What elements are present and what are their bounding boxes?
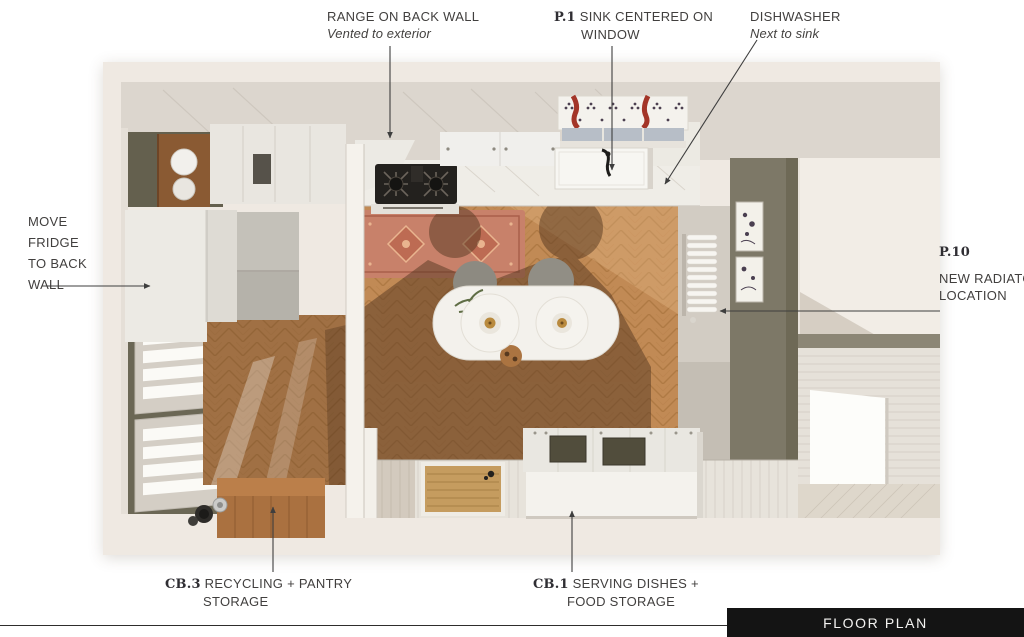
floor-plan-render <box>103 62 940 555</box>
pantry-room <box>125 124 346 524</box>
door-mat <box>421 462 505 516</box>
fridge-label: MOVE FRIDGE TO BACK WALL <box>28 214 87 292</box>
footer-divider <box>0 625 727 626</box>
range-title: RANGE ON BACK WALL <box>327 8 479 25</box>
fridge-annotation: MOVE FRIDGE TO BACK WALL <box>28 211 94 295</box>
dishwasher-annotation: DISHWASHER Next to sink <box>750 8 841 42</box>
pendant-light <box>461 294 519 352</box>
dishwasher-note: Next to sink <box>750 25 841 42</box>
range-note: Vented to exterior <box>327 25 479 42</box>
radiator-label: NEW RADIATOR LOCATION <box>939 271 1024 303</box>
pendant-light <box>536 297 588 349</box>
sink-label: SINK CENTERED ON WINDOW <box>580 9 713 42</box>
range-annotation: RANGE ON BACK WALL Vented to exterior <box>327 8 479 42</box>
door-panel <box>810 390 885 500</box>
floor-plan-svg <box>103 62 940 555</box>
sink <box>555 148 653 189</box>
sink-annotation: P.1 SINK CENTERED ON WINDOW <box>554 8 739 43</box>
cb1-code: CB.1 <box>533 577 569 592</box>
dishwasher-title: DISHWASHER <box>750 8 841 25</box>
cb3-code: CB.3 <box>165 577 201 592</box>
cb1-label: SERVING DISHES + FOOD STORAGE <box>567 576 699 609</box>
footer-title: FLOOR PLAN <box>823 615 928 631</box>
adjacent-room <box>798 158 940 520</box>
radiator-code: P.10 <box>939 244 1024 261</box>
footer-title-bar: FLOOR PLAN <box>727 608 1024 637</box>
sink-code: P.1 <box>554 10 576 25</box>
sideboard-cb1 <box>523 428 703 519</box>
cb3-annotation: CB.3 RECYCLING + PANTRY STORAGE <box>165 575 381 610</box>
divider-wall <box>346 144 364 518</box>
fridge-target-cabinet <box>125 210 207 342</box>
window-glass <box>562 128 684 141</box>
range-cooktop <box>371 164 459 214</box>
cb1-annotation: CB.1 SERVING DISHES + FOOD STORAGE <box>533 575 735 610</box>
window-curtain <box>558 96 688 130</box>
cb3-label: RECYCLING + PANTRY STORAGE <box>203 576 352 609</box>
fridge <box>237 212 299 270</box>
floor-plan-page: { "annotations": { "range": { "title": "… <box>0 0 1024 637</box>
radiator-annotation: P.10 NEW RADIATOR LOCATION <box>939 244 1024 304</box>
